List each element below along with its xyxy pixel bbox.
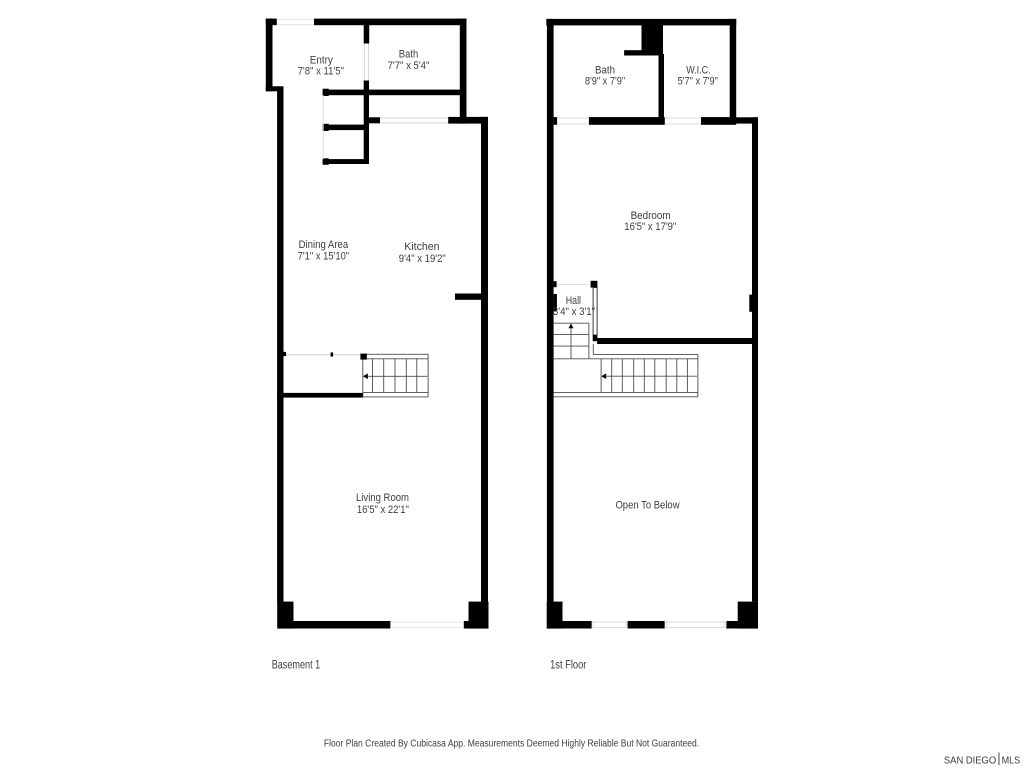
- svg-text:Living Room: Living Room: [356, 492, 409, 504]
- svg-text:16'5" x 22'1": 16'5" x 22'1": [357, 504, 409, 516]
- svg-text:7'8" x 11'5": 7'8" x 11'5": [298, 66, 345, 78]
- svg-text:Hall: Hall: [566, 295, 581, 307]
- svg-text:Entry: Entry: [310, 54, 334, 66]
- svg-text:7'1" x 15'10": 7'1" x 15'10": [298, 251, 350, 263]
- svg-text:Kitchen: Kitchen: [404, 241, 439, 253]
- svg-text:Bath: Bath: [595, 65, 615, 77]
- svg-text:5'7" x 7'9": 5'7" x 7'9": [678, 76, 718, 88]
- svg-text:3'4" x 3'1": 3'4" x 3'1": [553, 306, 595, 318]
- svg-text:1st Floor: 1st Floor: [550, 657, 586, 671]
- svg-text:W.I.C.: W.I.C.: [686, 64, 710, 76]
- svg-text:Floor Plan Created By Cubicasa: Floor Plan Created By Cubicasa App. Meas…: [324, 738, 699, 749]
- svg-text:Bedroom: Bedroom: [631, 210, 671, 222]
- svg-text:Basement 1: Basement 1: [272, 657, 321, 671]
- svg-text:Dining Area: Dining Area: [299, 239, 349, 251]
- svg-text:16'5" x 17'9": 16'5" x 17'9": [624, 221, 676, 233]
- svg-text:Bath: Bath: [399, 49, 418, 61]
- svg-text:7'7" x 5'4": 7'7" x 5'4": [388, 60, 430, 72]
- svg-text:MLS: MLS: [1002, 756, 1021, 767]
- svg-text:Open To Below: Open To Below: [615, 500, 679, 512]
- svg-text:9'4" x 19'2": 9'4" x 19'2": [399, 253, 446, 265]
- svg-text:SAN DIEGO: SAN DIEGO: [944, 756, 996, 767]
- svg-text:8'9" x 7'9": 8'9" x 7'9": [585, 76, 625, 88]
